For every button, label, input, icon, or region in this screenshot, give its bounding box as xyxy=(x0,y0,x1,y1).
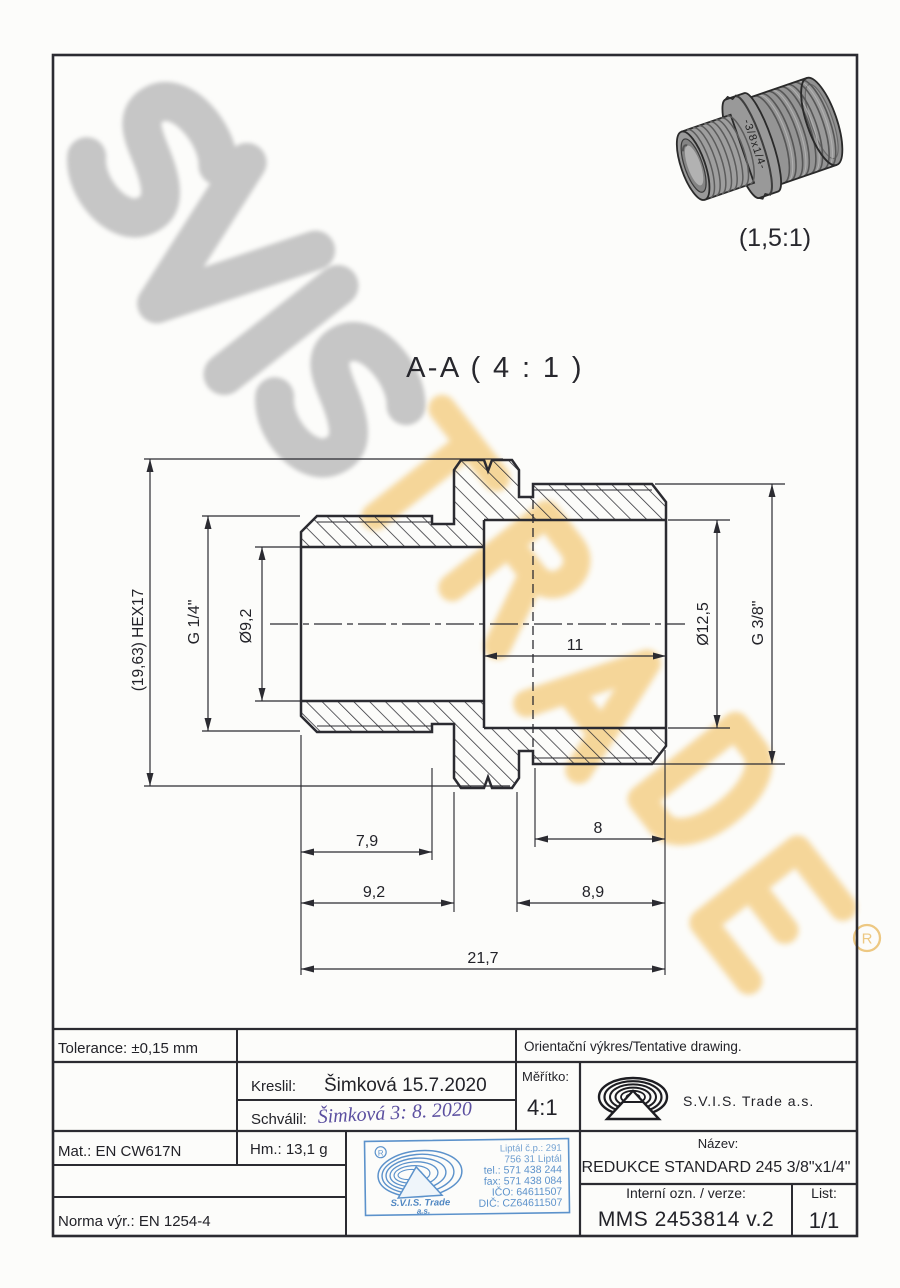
svg-text:Ø12,5: Ø12,5 xyxy=(695,602,712,646)
svg-text:A-A ( 4 : 1 ): A-A ( 4 : 1 ) xyxy=(406,352,584,384)
svg-text:Orientační výkres/Tentative dr: Orientační výkres/Tentative drawing. xyxy=(524,1039,742,1054)
svg-text:a.s.: a.s. xyxy=(417,1207,430,1216)
svg-text:Název:: Název: xyxy=(698,1136,738,1151)
svg-text:4:1: 4:1 xyxy=(527,1095,558,1120)
svg-text:R: R xyxy=(378,1149,384,1158)
svg-text:Měřítko:: Měřítko: xyxy=(522,1069,569,1084)
svg-text:R: R xyxy=(862,931,873,948)
svg-text:1/1: 1/1 xyxy=(809,1208,840,1233)
svg-text:8,9: 8,9 xyxy=(582,884,604,901)
svg-text:Norma výr.: EN 1254-4: Norma výr.: EN 1254-4 xyxy=(58,1213,211,1230)
svg-text:21,7: 21,7 xyxy=(467,950,498,967)
svg-text:REDUKCE STANDARD 245 3/8"x1/4": REDUKCE STANDARD 245 3/8"x1/4" xyxy=(582,1159,851,1176)
svg-text:(1,5:1): (1,5:1) xyxy=(739,224,811,252)
svg-text:Liptál č.p.: 291: Liptál č.p.: 291 xyxy=(500,1143,562,1155)
svg-text:Schválil:: Schválil: xyxy=(251,1111,307,1128)
svg-text:Kreslil:: Kreslil: xyxy=(251,1078,296,1095)
svg-text:DIČ: CZ64611507: DIČ: CZ64611507 xyxy=(478,1196,562,1210)
svg-text:9,2: 9,2 xyxy=(363,884,385,901)
svg-text:(19,63) HEX17: (19,63) HEX17 xyxy=(130,589,147,692)
svg-text:G 1/4": G 1/4" xyxy=(186,600,203,645)
svg-text:S.V.I.S. Trade a.s.: S.V.I.S. Trade a.s. xyxy=(683,1093,814,1109)
svg-text:7,9: 7,9 xyxy=(356,833,378,850)
svg-text:Hm.: 13,1 g: Hm.: 13,1 g xyxy=(250,1141,328,1158)
svg-text:Interní ozn. / verze:: Interní ozn. / verze: xyxy=(626,1185,746,1201)
svg-text:11: 11 xyxy=(567,637,584,654)
svg-text:8: 8 xyxy=(594,820,603,837)
svg-text:G 3/8": G 3/8" xyxy=(750,601,767,646)
svg-text:MMS 2453814 v.2: MMS 2453814 v.2 xyxy=(598,1208,774,1231)
svg-text:Tolerance: ±0,15 mm: Tolerance: ±0,15 mm xyxy=(58,1040,198,1057)
svg-text:Šimková 15.7.2020: Šimková 15.7.2020 xyxy=(324,1074,487,1096)
svg-text:List:: List: xyxy=(811,1185,837,1201)
svg-text:Ø9,2: Ø9,2 xyxy=(238,609,255,644)
svg-text:Mat.: EN CW617N: Mat.: EN CW617N xyxy=(58,1143,181,1160)
